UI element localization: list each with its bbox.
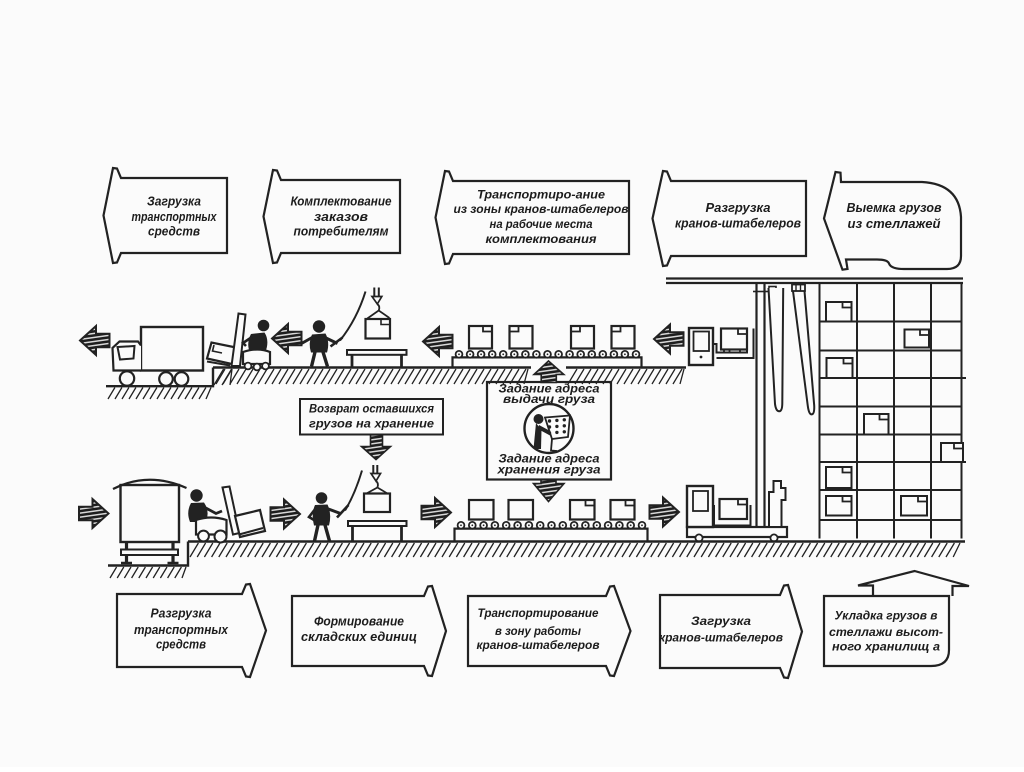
svg-text:Выемка грузов: Выемка грузов (847, 201, 942, 215)
svg-text:кранов-штабелеров: кранов-штабелеров (659, 631, 784, 645)
svg-text:в зону работы: в зону работы (495, 624, 582, 638)
svg-text:Разгрузка: Разгрузка (151, 607, 212, 621)
svg-text:на рабочие места: на рабочие места (490, 217, 593, 231)
svg-text:Транспортирование: Транспортирование (478, 606, 599, 620)
svg-text:транспортных: транспортных (132, 210, 218, 224)
svg-text:грузов на хранение: грузов на хранение (309, 417, 434, 431)
svg-text:Транспортиро-ание: Транспортиро-ание (477, 188, 605, 202)
svg-text:Возврат оставшихся: Возврат оставшихся (309, 402, 434, 416)
svg-text:Укладка грузов в: Укладка грузов в (835, 609, 939, 623)
svg-text:средств: средств (156, 638, 206, 652)
svg-text:ного хранилищ а: ного хранилищ а (832, 640, 940, 654)
svg-text:хранения груза: хранения груза (496, 463, 600, 477)
svg-text:средств: средств (148, 225, 200, 239)
svg-text:из зоны кранов-штабелеров: из зоны кранов-штабелеров (454, 202, 630, 216)
svg-text:Загрузка: Загрузка (691, 614, 751, 628)
svg-text:стеллажи высот-: стеллажи высот- (829, 625, 943, 639)
svg-text:Комплектование: Комплектование (291, 195, 392, 209)
svg-text:кранов-штабелеров: кранов-штабелеров (477, 638, 601, 652)
svg-text:складских единиц: складских единиц (301, 630, 417, 644)
svg-text:Разгрузка: Разгрузка (706, 201, 771, 215)
svg-text:из стеллажей: из стеллажей (848, 217, 941, 231)
svg-text:транспортных: транспортных (134, 623, 229, 637)
svg-text:Загрузка: Загрузка (147, 195, 201, 209)
svg-text:заказов: заказов (314, 210, 369, 224)
svg-text:Формирование: Формирование (314, 615, 404, 629)
svg-text:комплектования: комплектования (486, 232, 597, 246)
svg-text:потребителям: потребителям (294, 225, 389, 239)
svg-text:кранов-штабелеров: кранов-штабелеров (675, 217, 801, 231)
